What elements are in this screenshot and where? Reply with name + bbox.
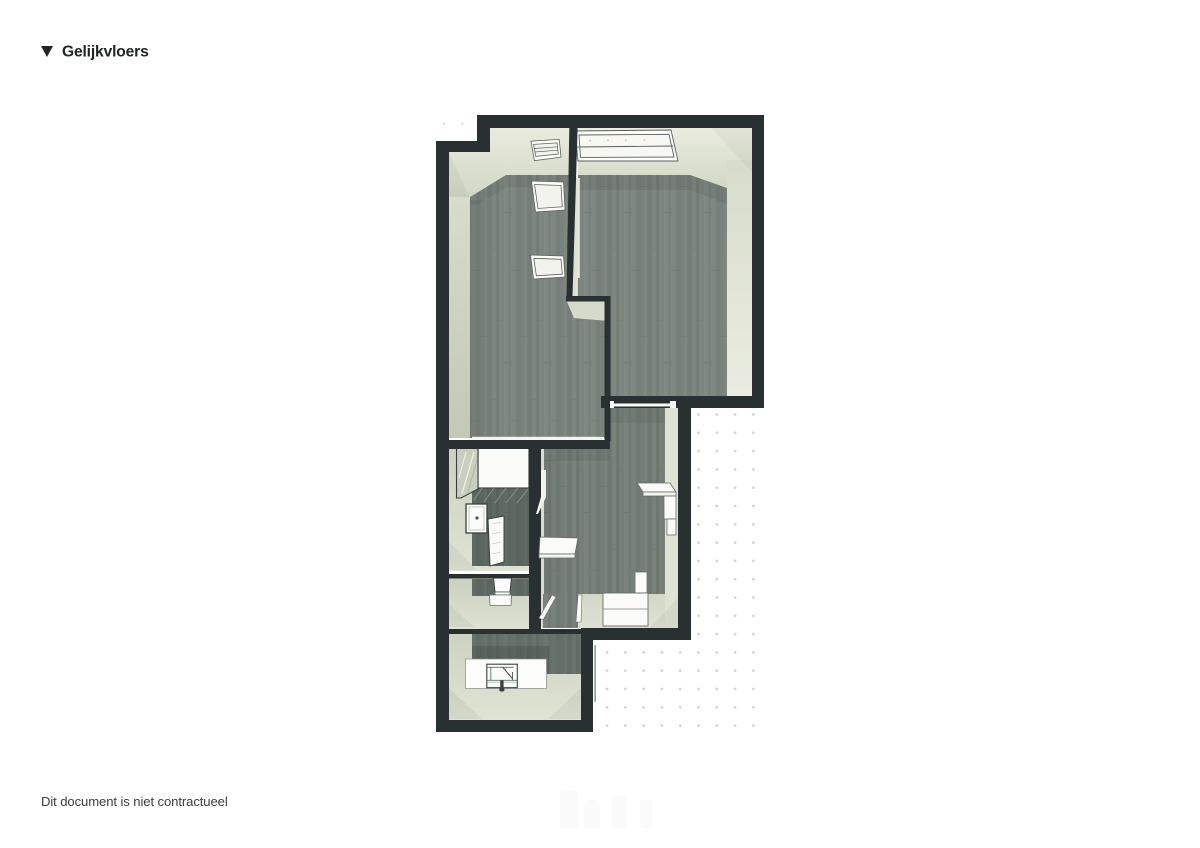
svg-text:Dit document is niet contractu: Dit document is niet contractueel [41, 794, 228, 809]
svg-text:Gelijkvloers: Gelijkvloers [62, 44, 149, 61]
